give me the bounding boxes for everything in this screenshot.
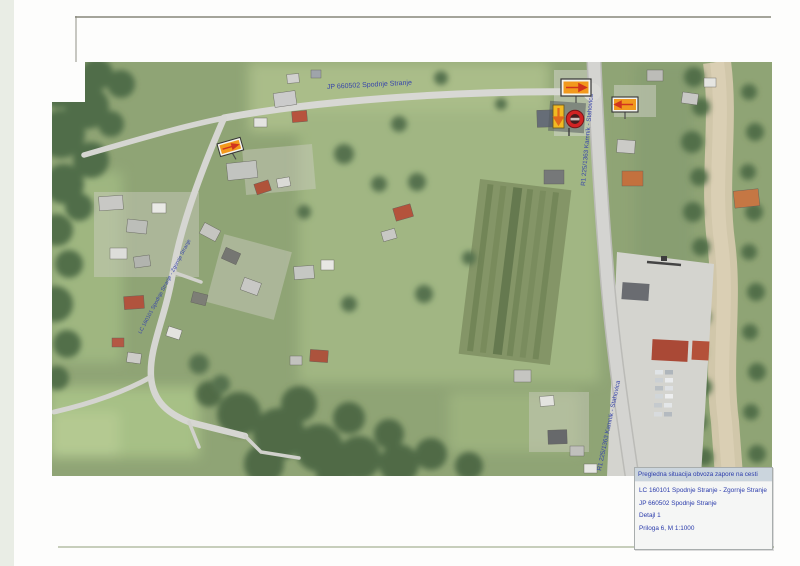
legend-line-detail: Detajl 1 xyxy=(635,510,772,523)
legend-line-attachment: Priloga 6, M 1:1000 xyxy=(635,523,772,536)
aerial-map: JP 660502 Spodnje Stranje R1 225/1363 Ka… xyxy=(52,62,772,476)
legend-title: Pregledna situacija obvoza zapore na ces… xyxy=(635,468,772,482)
legend-box: Pregledna situacija obvoza zapore na ces… xyxy=(634,467,773,550)
legend-line-road-lc: LC 160101 Spodnje Stranje - Zgornje Stra… xyxy=(635,485,772,498)
scan-wash xyxy=(52,62,772,476)
legend-body: LC 160101 Spodnje Stranje - Zgornje Stra… xyxy=(635,482,772,535)
aerial-map-container: JP 660502 Spodnje Stranje R1 225/1363 Ka… xyxy=(52,62,772,476)
legend-line-road-jp: JP 660502 Spodnje Stranje xyxy=(635,498,772,511)
scan-border-top xyxy=(75,16,771,18)
scan-page-edge xyxy=(0,0,14,566)
